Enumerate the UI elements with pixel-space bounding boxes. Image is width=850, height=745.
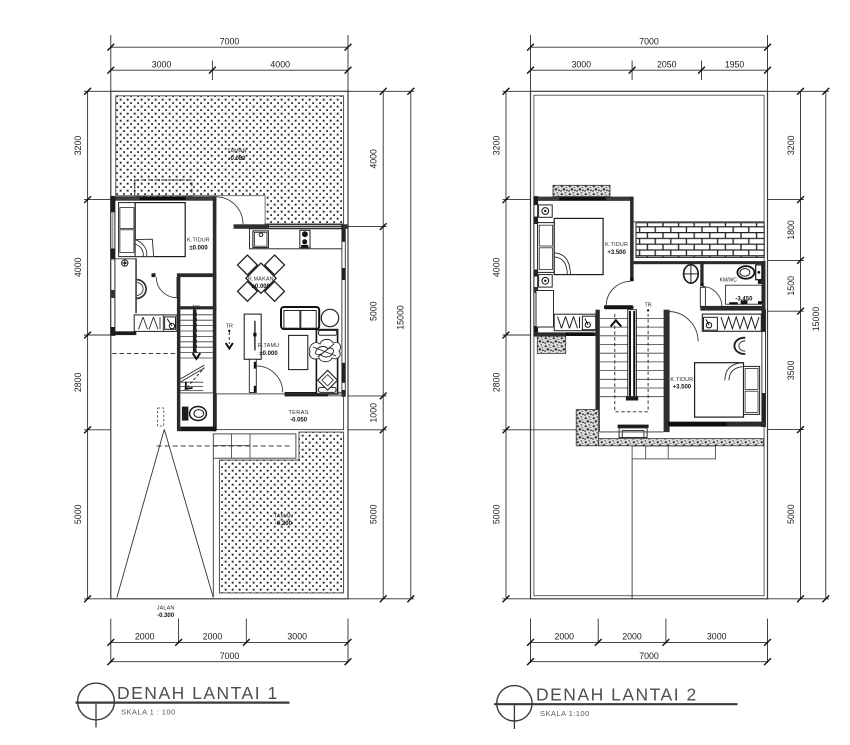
svg-text:3200: 3200 bbox=[491, 136, 501, 156]
svg-text:TAMAN: TAMAN bbox=[274, 513, 293, 519]
svg-text:SKALA 1:100: SKALA 1:100 bbox=[540, 709, 590, 718]
svg-text:3000: 3000 bbox=[152, 60, 172, 70]
svg-text:±0.000: ±0.000 bbox=[252, 284, 271, 290]
svg-text:K.TIDUR: K.TIDUR bbox=[605, 242, 628, 248]
svg-text:7000: 7000 bbox=[220, 37, 240, 47]
svg-text:5000: 5000 bbox=[369, 301, 379, 321]
svg-text:TAMAN: TAMAN bbox=[227, 148, 246, 154]
svg-text:2800: 2800 bbox=[73, 373, 83, 393]
svg-text:15000: 15000 bbox=[396, 305, 406, 330]
svg-text:3000: 3000 bbox=[707, 632, 727, 642]
svg-text:2000: 2000 bbox=[555, 632, 575, 642]
svg-text:-0.050: -0.050 bbox=[290, 417, 308, 423]
svg-text:2050: 2050 bbox=[657, 60, 677, 70]
svg-text:JALAN: JALAN bbox=[157, 606, 175, 612]
svg-text:4000: 4000 bbox=[270, 60, 290, 70]
svg-text:NK: NK bbox=[192, 305, 200, 311]
svg-text:1000: 1000 bbox=[369, 403, 379, 423]
svg-text:1800: 1800 bbox=[786, 220, 796, 240]
svg-text:5000: 5000 bbox=[73, 504, 83, 524]
svg-text:3000: 3000 bbox=[572, 60, 592, 70]
svg-text:DENAH LANTAI 1: DENAH LANTAI 1 bbox=[117, 683, 279, 703]
svg-text:7000: 7000 bbox=[639, 651, 659, 661]
svg-text:+3.500: +3.500 bbox=[673, 385, 692, 391]
svg-text:1950: 1950 bbox=[725, 60, 745, 70]
svg-text:2000: 2000 bbox=[203, 632, 223, 642]
svg-text:-0.200: -0.200 bbox=[275, 521, 293, 527]
svg-text:DENAH LANTAI 2: DENAH LANTAI 2 bbox=[536, 685, 698, 705]
svg-text:2800: 2800 bbox=[491, 373, 501, 393]
svg-text:R.TAMU: R.TAMU bbox=[258, 343, 279, 349]
svg-text:5000: 5000 bbox=[786, 504, 796, 524]
svg-text:3200: 3200 bbox=[786, 135, 796, 155]
svg-text:-0.080: -0.080 bbox=[228, 156, 246, 162]
svg-text:3200: 3200 bbox=[73, 136, 83, 156]
svg-text:7000: 7000 bbox=[220, 651, 240, 661]
svg-text:4000: 4000 bbox=[369, 149, 379, 169]
svg-text:5000: 5000 bbox=[491, 504, 501, 524]
svg-text:R.MAKAN: R.MAKAN bbox=[248, 277, 274, 283]
svg-text:5000: 5000 bbox=[369, 504, 379, 524]
svg-text:K.TIDUR: K.TIDUR bbox=[187, 238, 210, 244]
svg-text:±0.000: ±0.000 bbox=[189, 245, 208, 251]
svg-text:1500: 1500 bbox=[786, 276, 796, 296]
svg-text:4000: 4000 bbox=[73, 257, 83, 277]
svg-text:15000: 15000 bbox=[811, 307, 821, 332]
svg-text:SKALA 1 : 100: SKALA 1 : 100 bbox=[121, 708, 176, 717]
svg-text:2000: 2000 bbox=[622, 632, 642, 642]
svg-text:4000: 4000 bbox=[491, 257, 501, 277]
svg-text:3000: 3000 bbox=[287, 632, 307, 642]
svg-text:KM/WC: KM/WC bbox=[720, 277, 738, 283]
svg-text:-0.300: -0.300 bbox=[157, 613, 175, 619]
svg-text:3500: 3500 bbox=[786, 361, 796, 381]
svg-text:TERAS: TERAS bbox=[288, 410, 308, 416]
svg-text:K.TIDUR: K.TIDUR bbox=[670, 377, 693, 383]
svg-text:TR: TR bbox=[226, 323, 233, 329]
svg-text:+3.500: +3.500 bbox=[607, 250, 626, 256]
svg-text:2000: 2000 bbox=[135, 632, 155, 642]
svg-text:TR: TR bbox=[645, 303, 652, 309]
svg-text:±0.000: ±0.000 bbox=[259, 351, 278, 357]
svg-text:7000: 7000 bbox=[639, 37, 659, 47]
